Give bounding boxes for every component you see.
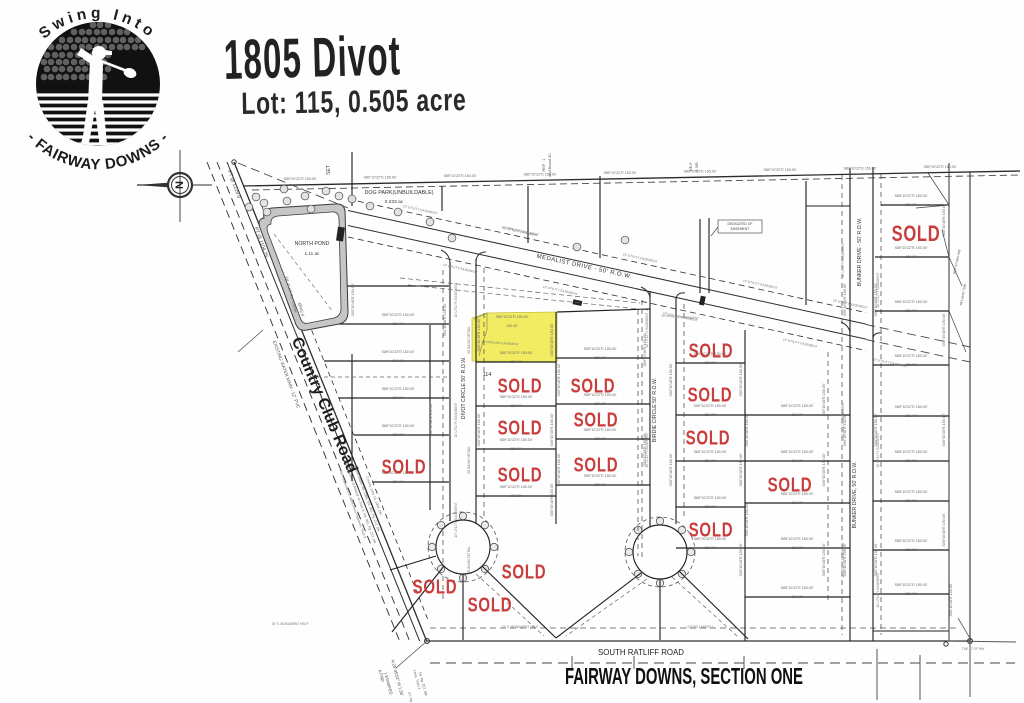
svg-text:10′ UTILITY EASEMENT: 10′ UTILITY EASEMENT (876, 572, 880, 607)
svg-text:BIRDIE CIRCLE 50' R.O.W.: BIRDIE CIRCLE 50' R.O.W. (652, 378, 658, 442)
svg-text:S00°10'48"E 150.00': S00°10'48"E 150.00' (351, 283, 355, 316)
svg-text:10′ UTILITY EASEMENT: 10′ UTILITY EASEMENT (841, 542, 845, 577)
svg-text:150.00′: 150.00′ (905, 499, 916, 503)
svg-text:S00°10'48"E 150.00': S00°10'48"E 150.00' (822, 453, 826, 486)
svg-text:S00°10'48"E 150.00': S00°10'48"E 150.00' (669, 363, 673, 396)
svg-text:S89°10'22"E 150.00': S89°10'22"E 150.00' (694, 496, 727, 500)
svg-text:DOG PARK(UNBUILDABLE): DOG PARK(UNBUILDABLE) (364, 190, 433, 196)
svg-text:10′ UTILITY EASEMENT: 10′ UTILITY EASEMENT (645, 312, 649, 347)
svg-text:S00°10'48"E 150.00': S00°10'48"E 150.00' (557, 453, 561, 486)
svg-text:S89°10'22"E 150.00': S89°10'22"E 150.00' (781, 537, 814, 541)
svg-text:150.00′: 150.00′ (791, 413, 802, 417)
svg-text:EASEMENT: EASEMENT (731, 227, 750, 231)
svg-text:S89°10'22"E 150.00': S89°10'22"E 150.00' (895, 450, 928, 454)
svg-text:150.00′: 150.00′ (791, 595, 802, 599)
svg-text:150.00′: 150.00′ (510, 404, 521, 408)
svg-text:150.00′: 150.00′ (905, 309, 916, 313)
svg-text:S89°10'22"E 150.00': S89°10'22"E 150.00' (781, 450, 814, 454)
svg-text:S89°10'22"E 150.00': S89°10'22"E 150.00' (382, 387, 415, 391)
svg-text:15′ S. MONUMENT HELP: 15′ S. MONUMENT HELP (272, 622, 309, 626)
svg-text:LOT RD LANDFILL: LOT RD LANDFILL (686, 625, 714, 629)
svg-text:SOUTH RATLIFF ROAD: SOUTH RATLIFF ROAD (598, 648, 684, 657)
svg-text:S89°10'22"E 150.00': S89°10'22"E 150.00' (895, 354, 928, 358)
svg-text:150.00′: 150.00′ (791, 459, 802, 463)
svg-text:10′ UTILITY EASEMENT: 10′ UTILITY EASEMENT (454, 282, 458, 317)
svg-text:150.00′: 150.00′ (594, 483, 605, 487)
svg-text:BUNKER DRIVE - 50' R.O.W.: BUNKER DRIVE - 50' R.O.W. (857, 218, 863, 286)
svg-text:S00°10'48"E 150.00': S00°10'48"E 150.00' (739, 453, 743, 486)
svg-text:S89°10'22"E 150.00': S89°10'22"E 150.00' (694, 450, 727, 454)
svg-text:S89°10'22"E 150.00': S89°10'22"E 150.00' (895, 300, 928, 304)
svg-text:150.00′: 150.00′ (510, 494, 521, 498)
svg-text:10′ UTILITY EASEMENT: 10′ UTILITY EASEMENT (841, 242, 845, 277)
svg-text:S89°10'22"E 150.00': S89°10'22"E 150.00' (364, 176, 397, 180)
svg-text:S89°10'22"E 150.00': S89°10'22"E 150.00' (895, 539, 928, 543)
svg-text:S89°10'22"E 150.00': S89°10'22"E 150.00' (584, 347, 617, 351)
svg-text:S89°10'22"E 150.00': S89°10'22"E 150.00' (781, 404, 814, 408)
svg-text:FAIRWAY DOWNS, SECTION ONE: FAIRWAY DOWNS, SECTION ONE (565, 663, 803, 689)
svg-text:S89°10'22"E 150.00': S89°10'22"E 150.00' (382, 313, 415, 317)
svg-text:NORTH POND: NORTH POND (295, 241, 330, 247)
svg-text:150.00′: 150.00′ (791, 501, 802, 505)
svg-text:BUNKER DRIVE, 50' R.O.W.: BUNKER DRIVE, 50' R.O.W. (852, 462, 858, 529)
svg-text:S00°10'48"E 150.00': S00°10'48"E 150.00' (739, 543, 743, 576)
svg-text:150.00′: 150.00′ (392, 480, 403, 484)
svg-text:S89°10'22"E 150.00': S89°10'22"E 150.00' (924, 165, 957, 169)
svg-text:S89°10'22"E 150.00': S89°10'22"E 150.00' (684, 169, 717, 173)
svg-text:10′ UTILITY EASEMENT: 10′ UTILITY EASEMENT (841, 402, 845, 437)
svg-text:S89°10'22"E 150.00': S89°10'22"E 150.00' (524, 172, 557, 176)
svg-text:150.00′: 150.00′ (704, 459, 715, 463)
svg-text:S89°10'22"E 150.00': S89°10'22"E 150.00' (895, 583, 928, 587)
svg-text:S00°10'48"E 150.00': S00°10'48"E 150.00' (557, 363, 561, 396)
svg-text:150.00′: 150.00′ (392, 433, 403, 437)
svg-text:S89°10'22"E 150.00': S89°10'22"E 150.00' (382, 424, 415, 428)
svg-text:S89°10'22"E 150.00': S89°10'22"E 150.00' (382, 350, 415, 354)
svg-text:S00°10'48"E 150.00': S00°10'48"E 150.00' (739, 363, 743, 396)
svg-text:S89°10'22"E 150.00': S89°10'22"E 150.00' (444, 174, 477, 178)
svg-text:150.00′: 150.00′ (510, 447, 521, 451)
svg-text:114: 114 (483, 372, 492, 378)
svg-text:S89°10'22"E 150.00': S89°10'22"E 150.00' (895, 405, 928, 409)
svg-text:150.00′: 150.00′ (594, 402, 605, 406)
svg-text:10′ UTILITY EASEMENT: 10′ UTILITY EASEMENT (454, 402, 458, 437)
svg-text:150.00′: 150.00′ (905, 592, 916, 596)
svg-text:150.00′: 150.00′ (392, 396, 403, 400)
svg-text:10′ UTILITY EASEMENT: 10′ UTILITY EASEMENT (454, 502, 458, 537)
svg-text:150.00′: 150.00′ (704, 505, 715, 509)
svg-text:S00°10'48"E 150.00': S00°10'48"E 150.00' (874, 543, 878, 576)
svg-text:150.00′: 150.00′ (506, 324, 517, 328)
svg-text:S89°10'22"E 150.00': S89°10'22"E 150.00' (844, 166, 877, 170)
svg-text:150.00′: 150.00′ (905, 548, 916, 552)
svg-text:SE BASIN SETBAL: SE BASIN SETBAL (467, 326, 471, 354)
svg-text:S00°10'48"E 150.00': S00°10'48"E 150.00' (443, 303, 447, 336)
svg-text:S00°10'48"E 150.00': S00°10'48"E 150.00' (745, 503, 749, 536)
svg-text:S00°10'48"E 150.00': S00°10'48"E 150.00' (822, 383, 826, 416)
svg-text:150.00′: 150.00′ (905, 203, 916, 207)
svg-text:15′ S. MONUMENT HELP: 15′ S. MONUMENT HELP (502, 625, 539, 629)
svg-text:150.00′: 150.00′ (905, 255, 916, 259)
svg-text:SET: SET (326, 165, 332, 175)
svg-text:150.00′: 150.00′ (791, 546, 802, 550)
svg-text:150.00′: 150.00′ (704, 413, 715, 417)
svg-text:SE BASIN SETBAL: SE BASIN SETBAL (467, 446, 471, 474)
svg-text:S00°10'48"E 150.00': S00°10'48"E 150.00' (550, 413, 554, 446)
svg-text:DIVOT CIRCLE 50' R.O.W.: DIVOT CIRCLE 50' R.O.W. (461, 357, 467, 420)
svg-text:150.00′: 150.00′ (392, 322, 403, 326)
svg-text:10′ UTILITY EASEMENT: 10′ UTILITY EASEMENT (645, 432, 649, 467)
svg-text:S00°10'48"E 150.00': S00°10'48"E 150.00' (942, 413, 946, 446)
svg-text:S00°10'48"E 150.00': S00°10'48"E 150.00' (942, 203, 946, 236)
svg-text:S00°10'48"E 150.00': S00°10'48"E 150.00' (949, 583, 953, 616)
svg-text:S89°10'22"E 150.00': S89°10'22"E 150.00' (895, 194, 928, 198)
svg-text:10′ UTILITY EASEMENT: 10′ UTILITY EASEMENT (876, 432, 880, 467)
svg-text:1.11 ac: 1.11 ac (305, 251, 320, 256)
svg-text:150.00′: 150.00′ (905, 459, 916, 463)
svg-text:S00°10'48"E 150.00': S00°10'48"E 150.00' (942, 513, 946, 546)
svg-text:S00°10'48"E 150.00': S00°10'48"E 150.00' (942, 313, 946, 346)
svg-text:S00°10'48"E 150.00': S00°10'48"E 150.00' (550, 483, 554, 516)
svg-text:THE 17 OF HW: THE 17 OF HW (962, 647, 984, 651)
svg-text:S89°10'22"E 150.00': S89°10'22"E 150.00' (895, 490, 928, 494)
svg-text:150.00′: 150.00′ (704, 546, 715, 550)
svg-text:150.00′: 150.00′ (594, 437, 605, 441)
svg-text:S00°10'48"E 150.00': S00°10'48"E 150.00' (550, 323, 554, 356)
svg-text:S00°10'48"E 150.00': S00°10'48"E 150.00' (669, 453, 673, 486)
svg-text:S00°10'48"E 150.00': S00°10'48"E 150.00' (477, 413, 481, 446)
svg-text:S89°10'22"E 150.00': S89°10'22"E 150.00' (500, 351, 533, 355)
svg-text:S00°10'48"E 150.00': S00°10'48"E 150.00' (745, 413, 749, 446)
svg-text:S89°10'22"E 150.00': S89°10'22"E 150.00' (604, 171, 637, 175)
svg-text:150.00′: 150.00′ (392, 359, 403, 363)
svg-text:S89°10'22"E 150.00': S89°10'22"E 150.00' (496, 315, 529, 319)
svg-text:S89°10'22"E 150.00': S89°10'22"E 150.00' (284, 177, 317, 181)
svg-text:S00°10'48"E 150.00': S00°10'48"E 150.00' (822, 543, 826, 576)
svg-text:150.00′: 150.00′ (510, 360, 521, 364)
svg-text:S00°10'48"E 150.00': S00°10'48"E 150.00' (477, 318, 481, 351)
svg-text:0.233 ac: 0.233 ac (385, 199, 404, 205)
svg-text:S89°10'22"E 150.00': S89°10'22"E 150.00' (764, 168, 797, 172)
svg-text:SE BASIN SETBAL: SE BASIN SETBAL (467, 546, 471, 574)
svg-text:REF : 1: REF : 1 (542, 159, 546, 172)
svg-text:S89°10'22"E 150.00': S89°10'22"E 150.00' (781, 586, 814, 590)
svg-text:150.00′: 150.00′ (594, 356, 605, 360)
svg-text:DEDICATED OF: DEDICATED OF (728, 222, 753, 226)
svg-text:S00°10'48"E 150.00': S00°10'48"E 150.00' (429, 403, 433, 436)
svg-text:10′ UTILITY EASEMENT: 10′ UTILITY EASEMENT (876, 272, 880, 307)
svg-text:150.00′: 150.00′ (905, 414, 916, 418)
